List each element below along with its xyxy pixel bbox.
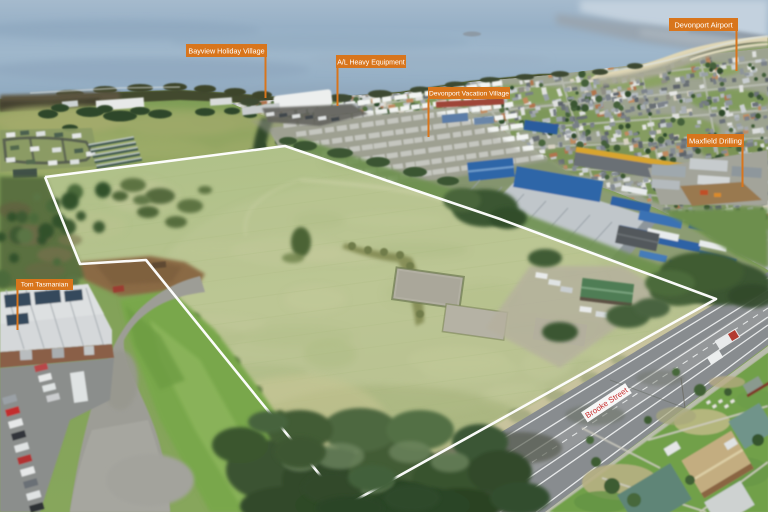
- svg-text:Tom Tasmanian: Tom Tasmanian: [21, 282, 69, 289]
- svg-text:Devonport Vacation Village: Devonport Vacation Village: [429, 91, 509, 98]
- svg-text:Maxfield Drilling: Maxfield Drilling: [689, 137, 742, 146]
- svg-text:Bayview Holiday Village: Bayview Holiday Village: [188, 47, 264, 56]
- svg-text:Devonport Airport: Devonport Airport: [674, 21, 733, 30]
- svg-text:A/L Heavy Equipment: A/L Heavy Equipment: [337, 60, 404, 67]
